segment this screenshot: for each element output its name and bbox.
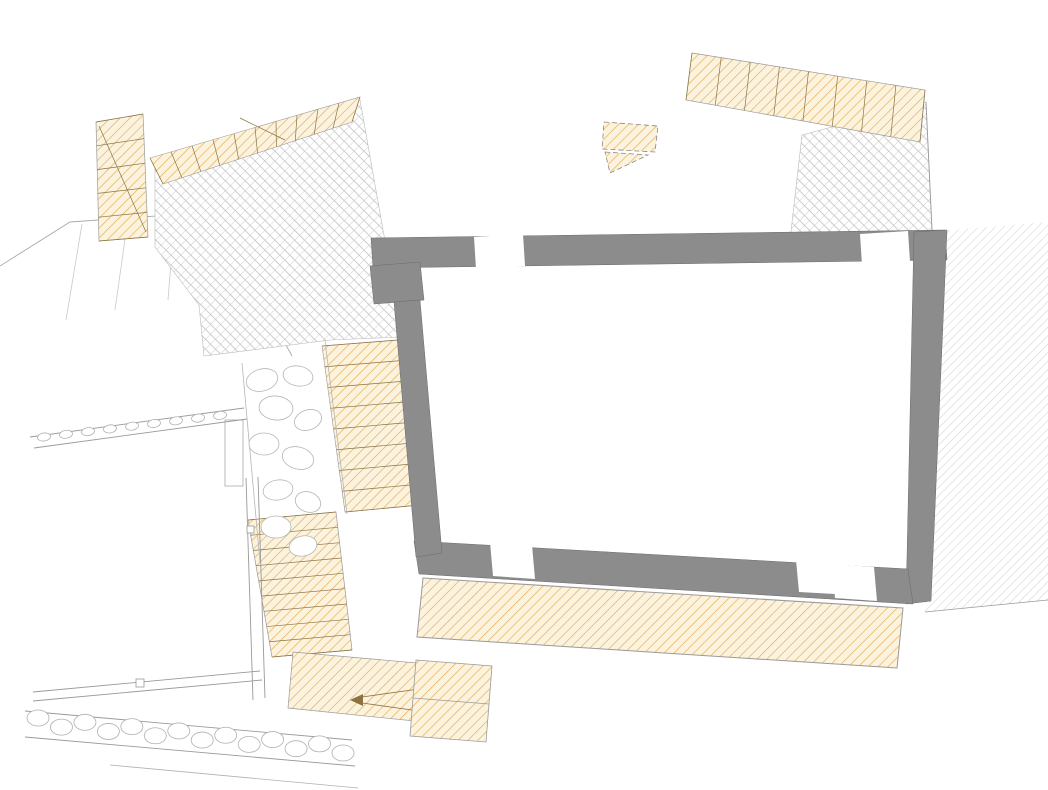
stairs-top-right [686, 53, 925, 142]
wall-post [247, 526, 254, 533]
stone [309, 736, 331, 752]
pebble [244, 365, 281, 395]
balcone-slab [410, 578, 903, 742]
ramp [288, 652, 428, 722]
stone [168, 723, 190, 739]
muro-stone [59, 429, 73, 439]
stone [332, 745, 354, 761]
muro-stone [169, 416, 183, 426]
muro-stone [37, 432, 51, 442]
pebble [280, 443, 317, 473]
wall-edge [246, 478, 253, 700]
aiuola-strip [225, 340, 420, 512]
stairs-top-left [96, 114, 148, 241]
door-gap [860, 231, 910, 265]
pebble [292, 488, 323, 516]
floor-plan-drawing [0, 0, 1048, 790]
stone [238, 736, 260, 752]
floor-plan-canvas [0, 0, 1048, 790]
slope-line [66, 224, 82, 320]
planter-outline [225, 420, 243, 486]
door-gap [490, 542, 535, 579]
window-gap [796, 560, 835, 594]
wall-edge [33, 671, 260, 692]
pebble [291, 406, 324, 434]
dashed-hatch [602, 122, 658, 152]
stone-band-edge [110, 765, 358, 788]
wall-openings [474, 231, 910, 601]
stone [50, 719, 72, 735]
muro-stone [103, 424, 117, 434]
wall-post [136, 679, 144, 687]
stone [27, 710, 49, 726]
stone [121, 719, 143, 735]
muro-pietrame [30, 408, 247, 448]
pebble [249, 433, 279, 455]
dashed-shapes [602, 122, 658, 173]
pebble [261, 478, 294, 503]
muro-stone [81, 427, 95, 437]
wall-edge [33, 680, 262, 701]
stone [74, 714, 96, 730]
stone [215, 727, 237, 743]
existing-walls [370, 230, 947, 604]
west-corner [370, 262, 424, 304]
pebble [281, 364, 314, 389]
door-gap [832, 564, 877, 601]
stone [191, 732, 213, 748]
muro-stone [125, 421, 139, 431]
stone [144, 728, 166, 744]
pebble [258, 395, 294, 422]
pebble [261, 516, 291, 538]
dashed-hatch [605, 152, 648, 173]
door-gap [474, 234, 525, 269]
stone [97, 723, 119, 739]
stone-band-edge [25, 711, 352, 740]
ramp-hatch [288, 652, 428, 722]
stone [262, 732, 284, 748]
stone [285, 741, 307, 757]
muro-stone [147, 419, 161, 429]
